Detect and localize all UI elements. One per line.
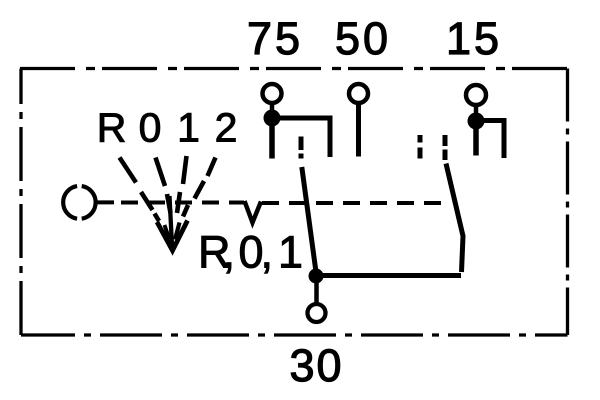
svg-text:15: 15 bbox=[446, 13, 502, 64]
svg-text:,: , bbox=[261, 227, 274, 278]
svg-text:R: R bbox=[97, 105, 127, 151]
svg-text:0: 0 bbox=[139, 105, 162, 151]
svg-text:,: , bbox=[223, 227, 236, 278]
svg-text:1: 1 bbox=[177, 105, 200, 151]
svg-text:50: 50 bbox=[335, 13, 391, 64]
svg-text:1: 1 bbox=[278, 227, 303, 278]
svg-text:2: 2 bbox=[215, 105, 238, 151]
svg-text:30: 30 bbox=[289, 340, 343, 391]
svg-text:75: 75 bbox=[247, 13, 303, 64]
